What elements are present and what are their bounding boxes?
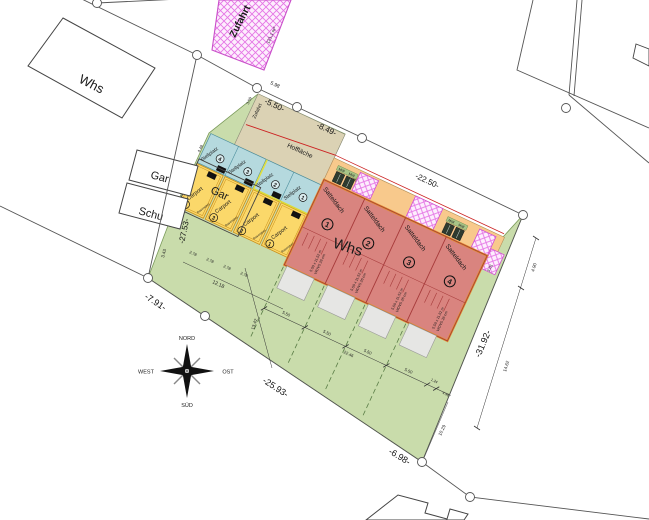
neighbor-building-south [366, 495, 468, 520]
dim-25-93: -25.93- [261, 375, 290, 399]
compass-rose: NORD SÜD WEST OST [138, 336, 234, 409]
site-plan: Hoffläche Zufahrt 3.59 Stellplatz 4 SW S… [0, 0, 649, 520]
compass-east-label: OST [222, 370, 234, 376]
dim-14-62: 14.62 [502, 360, 510, 373]
compass-north-label: NORD [179, 336, 195, 342]
compass-w-point [160, 367, 185, 376]
dim-5-98: 5.98 [269, 80, 281, 90]
dim-31-92: -31.92- [473, 329, 493, 359]
neighbor-building-whs [28, 18, 155, 118]
dim-tick [533, 236, 539, 240]
dim-7-91: -7.91- [143, 291, 168, 312]
site-plan-drawing: Hoffläche Zufahrt 3.59 Stellplatz 4 SW S… [0, 0, 649, 520]
dim-22-50: -22.50- [414, 171, 441, 190]
neighbor-parcel-lines [517, 0, 649, 163]
compass-n-point [183, 344, 192, 369]
dim-tick [474, 426, 480, 430]
compass-e-point [189, 367, 214, 376]
compass-south-label: SÜD [181, 402, 193, 409]
compass-s-point [183, 373, 192, 398]
dim-4-90: 4.90 [530, 262, 537, 272]
dim-10-29: 10.29 [437, 424, 447, 437]
compass-west-label: WEST [138, 370, 155, 376]
